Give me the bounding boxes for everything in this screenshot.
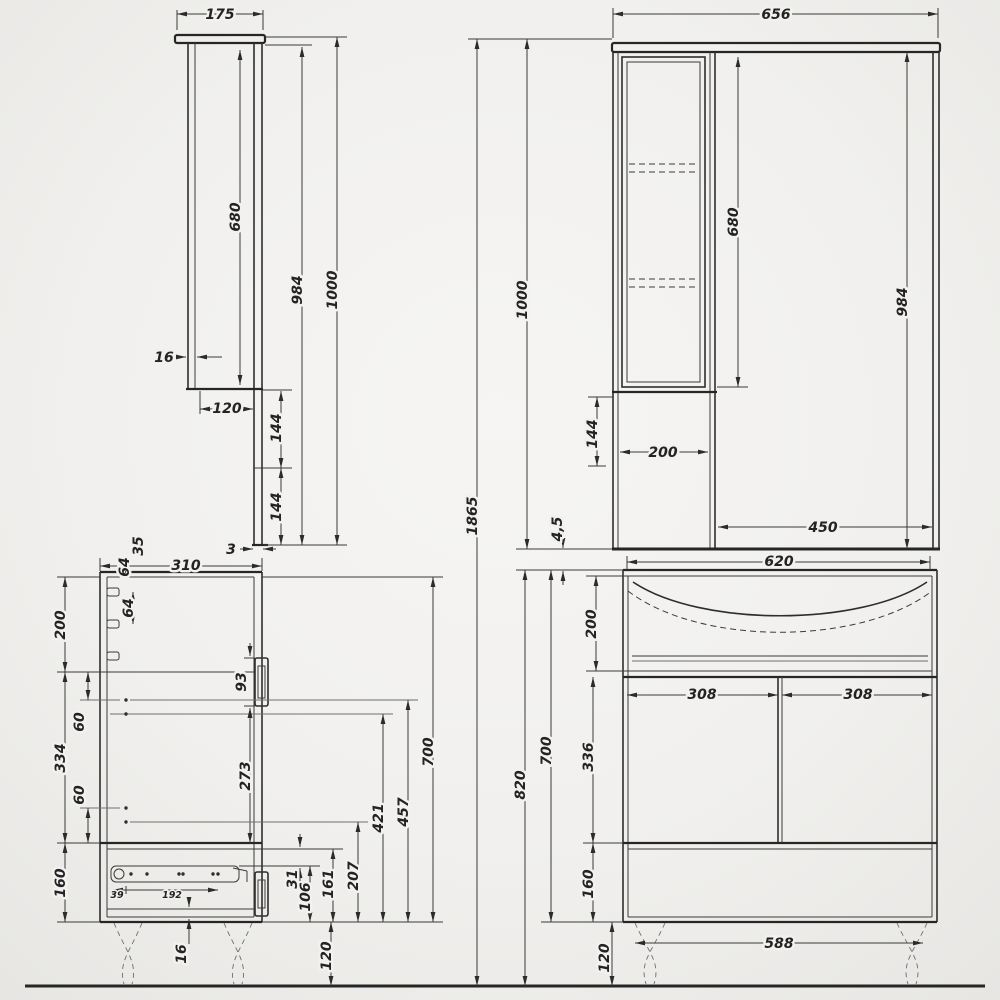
dim-mf-height-no-top: 984 [895,287,911,316]
dim-vs-handle-pos: 273 [238,761,254,790]
dim-vf-drawer-height: 160 [581,869,597,898]
dim-mf-gap: 4,5 [550,516,566,542]
dim-vs-mid-section: 334 [53,743,69,772]
dim-vf-leg-span: 588 [764,936,793,952]
view-vanity-side: 310 35 64 64 200 334 160 60 60 93 273 [53,536,443,986]
technical-drawing: 175 680 16 120 144 144 3 984 1000 [0,0,1000,1000]
dim-vf-door-width-right: 308 [843,687,872,703]
dim-vs-peg-gap-b: 64 [121,598,137,617]
dim-vf-width: 620 [764,554,793,570]
dim-vs-height: 700 [421,737,437,766]
dim-ms-height-no-top: 984 [290,275,306,304]
view-mirror-side: 175 680 16 120 144 144 3 984 1000 [154,7,347,558]
dim-mf-overall-height: 1865 [465,496,481,535]
dim-ms-lower-depth: 120 [212,401,241,417]
dim-vs-pin-upper: 60 [72,712,88,732]
dim-vf-height: 700 [539,736,555,765]
dim-ms-lower-upper: 144 [269,413,285,442]
dim-mf-total-height: 1000 [515,280,531,319]
dim-ms-width: 175 [205,7,234,23]
dim-ms-inner-height: 680 [228,202,244,231]
dim-vf-door-height: 336 [581,742,597,771]
dim-vs-depth: 310 [171,558,200,574]
dim-vs-pin-lower: 60 [72,785,88,805]
dim-mf-niche-width: 200 [648,445,677,461]
dim-vf-door-width-left: 308 [687,687,716,703]
dim-vs-handle-upper: 93 [234,672,250,691]
dim-vs-drawer-zone: 161 [321,869,337,898]
dim-ms-panel-thickness: 16 [154,350,174,366]
dim-ms-back-thickness: 3 [226,542,236,558]
dim-vs-slide-span: 192 [162,890,182,901]
dim-vs-top-section: 200 [53,610,69,639]
dim-vf-height-with-legs: 820 [513,770,529,799]
dim-vs-peg-offset: 35 [131,536,147,556]
view-vanity-front: 620 200 336 160 700 820 308 308 588 120 [513,554,937,986]
dim-vs-leg-height: 120 [319,941,335,970]
dim-vs-peg-gap-a: 64 [117,557,133,576]
dim-vs-pin-from-bottom: 457 [396,797,412,827]
dim-mf-inner-height: 680 [726,207,742,236]
dim-vf-leg-height: 120 [597,943,613,972]
dim-vs-slide-front: 39 [110,890,124,901]
dim-vs-pin2-from-bottom: 207 [346,861,362,890]
dim-vs-slide-gap: 31 [285,869,301,888]
view-mirror-front: 656 680 984 1000 1865 144 200 450 4,5 [465,7,940,986]
dim-vs-bottom-section: 160 [53,868,69,897]
drawing-canvas: 175 680 16 120 144 144 3 984 1000 [0,0,1000,1000]
dim-ms-lower-lower: 144 [269,492,285,521]
dim-vf-sink-height: 200 [584,609,600,638]
dim-mf-width: 656 [761,7,790,23]
dim-vs-shelf-from-bottom: 421 [371,803,387,833]
dim-mf-mirror-width: 450 [807,520,837,536]
dim-ms-total-height: 1000 [325,270,341,309]
dim-mf-niche-height: 144 [585,419,601,448]
dim-vs-bottom-thickness: 16 [174,944,190,964]
